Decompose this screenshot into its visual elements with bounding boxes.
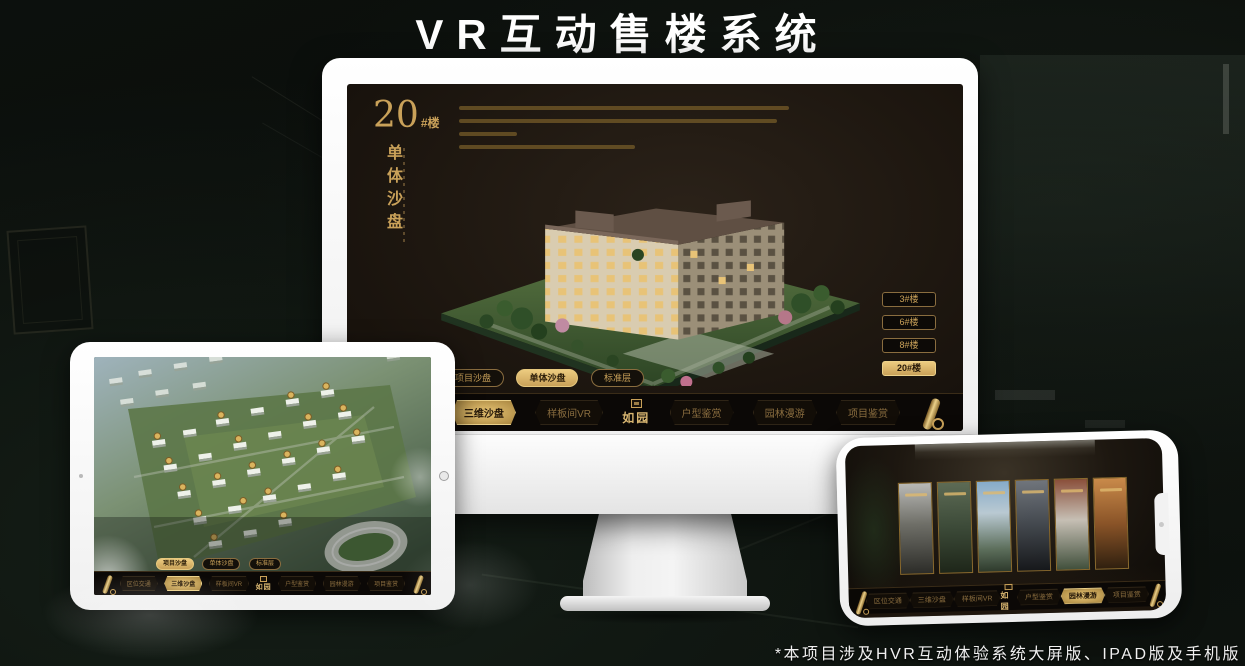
nav-item-model-room-vr[interactable]: 样板间VR — [535, 400, 603, 425]
tablet-device: 项目沙盘 单体沙盘 标准层 区位交通 三维沙盘 样板间VR 如园 户型鉴赏 园林… — [70, 342, 455, 610]
nav-item-model-room-vr[interactable]: 样板间VR — [954, 590, 1001, 607]
poster-footnote: *本项目涉及HVR互动体验系统大屏版、IPAD版及手机版 — [775, 640, 1241, 664]
background-highlight — [1085, 420, 1125, 428]
scene-gallery — [898, 477, 1129, 575]
background-picture-frame — [6, 225, 93, 334]
floor-button-20[interactable]: 20#楼 — [882, 361, 936, 376]
phone-device: 区位交通 三维沙盘 样板间VR 如园 户型鉴赏 园林漫游 项目鉴赏 — [836, 430, 1183, 627]
nav-item-project-gallery[interactable]: 项目鉴赏 — [1105, 586, 1149, 603]
nav-item-project-gallery[interactable]: 项目鉴赏 — [367, 576, 405, 591]
monitor-base — [560, 596, 770, 611]
background-map-line — [252, 76, 329, 125]
gallery-panel-sketch[interactable] — [898, 482, 934, 575]
brand-logo: 如园 — [256, 576, 272, 592]
logo-seal-icon — [260, 576, 267, 582]
nav-item-3d-sandbox[interactable]: 三维沙盘 — [164, 576, 202, 591]
subtab-standard-floor[interactable]: 标准层 — [249, 558, 281, 570]
building-number-suffix: #楼 — [421, 116, 440, 130]
logo-seal-icon — [631, 399, 642, 408]
nav-item-floorplan-gallery[interactable]: 户型鉴赏 — [278, 576, 316, 591]
nav-item-3d-sandbox[interactable]: 三维沙盘 — [910, 591, 954, 608]
background-street-photo — [980, 55, 1245, 455]
logo-seal-icon — [1004, 583, 1012, 589]
building-3d-render[interactable] — [413, 154, 883, 386]
brand-logo: 如园 — [1000, 583, 1017, 611]
nav-item-location-traffic[interactable]: 区位交通 — [120, 576, 158, 591]
tablet-main-navbar: 区位交通 三维沙盘 样板间VR 如园 户型鉴赏 园林漫游 项目鉴赏 — [94, 571, 431, 595]
subtab-single-sandbox[interactable]: 单体沙盘 — [516, 369, 578, 387]
nav-item-3d-sandbox[interactable]: 三维沙盘 — [452, 400, 516, 425]
floor-button-6[interactable]: 6#楼 — [882, 315, 936, 330]
description-line — [459, 132, 517, 136]
background-highlight — [995, 390, 1055, 400]
gallery-panel-courtyard[interactable] — [937, 481, 973, 574]
floor-button-3[interactable]: 3#楼 — [882, 292, 936, 307]
floor-selector: 3#楼 6#楼 8#楼 20#楼 — [882, 292, 936, 376]
nav-item-garden-tour[interactable]: 园林漫游 — [323, 576, 361, 591]
scroll-menu-icon[interactable] — [101, 575, 113, 593]
description-line — [459, 119, 777, 123]
gallery-panel-autumn[interactable] — [1054, 478, 1090, 571]
logo-text: 如园 — [256, 582, 272, 592]
building-number: 20 — [373, 95, 419, 136]
scroll-menu-icon[interactable] — [855, 590, 867, 612]
subtab-single-sandbox[interactable]: 单体沙盘 — [202, 558, 240, 570]
tablet-sandbox-subtabs: 项目沙盘 单体沙盘 标准层 — [156, 552, 285, 570]
gallery-panel-day-building[interactable] — [976, 480, 1012, 573]
brand-logo: 如园 — [622, 399, 650, 426]
scroll-menu-icon[interactable] — [919, 398, 941, 428]
section-title-vertical: 单体沙盘 — [380, 144, 404, 236]
interior-ceiling-beam — [915, 440, 1095, 461]
nav-item-floorplan-gallery[interactable]: 户型鉴赏 — [1017, 588, 1061, 605]
background-highlight — [1223, 64, 1229, 134]
tablet-camera — [79, 474, 83, 478]
nav-item-project-gallery[interactable]: 项目鉴赏 — [836, 400, 900, 425]
floor-button-8[interactable]: 8#楼 — [882, 338, 936, 353]
nav-item-garden-tour[interactable]: 园林漫游 — [1061, 587, 1105, 604]
poster: VR互动售楼系统 20#楼 单体沙盘 — [0, 0, 1245, 666]
sandbox-subtabs: 项目沙盘 单体沙盘 标准层 — [442, 368, 652, 387]
description-line — [459, 145, 635, 149]
scroll-menu-icon[interactable] — [1149, 583, 1161, 605]
building-description — [459, 106, 799, 158]
phone-screen: 区位交通 三维沙盘 样板间VR 如园 户型鉴赏 园林漫游 项目鉴赏 — [845, 438, 1166, 618]
subtab-project-sandbox[interactable]: 项目沙盘 — [156, 558, 194, 570]
building-heading: 20#楼 — [373, 98, 440, 134]
subtab-standard-floor[interactable]: 标准层 — [591, 369, 644, 387]
tablet-home-button[interactable] — [439, 471, 449, 481]
nav-item-model-room-vr[interactable]: 样板间VR — [209, 576, 249, 591]
monitor-stand — [583, 512, 747, 598]
nav-item-garden-tour[interactable]: 园林漫游 — [753, 400, 817, 425]
description-line — [459, 106, 789, 110]
scroll-menu-icon[interactable] — [412, 575, 424, 593]
phone-notch — [1154, 493, 1170, 555]
logo-text: 如园 — [622, 409, 650, 426]
gallery-panel-interior[interactable] — [1093, 477, 1129, 570]
nav-item-floorplan-gallery[interactable]: 户型鉴赏 — [670, 400, 734, 425]
logo-text: 如园 — [1000, 589, 1017, 611]
gallery-panel-dusk-building[interactable] — [1015, 479, 1051, 572]
tablet-screen: 项目沙盘 单体沙盘 标准层 区位交通 三维沙盘 样板间VR 如园 户型鉴赏 园林… — [94, 357, 431, 595]
poster-title: VR互动售楼系统 — [0, 1, 1245, 62]
decorative-english-caption — [403, 148, 405, 244]
nav-item-location-traffic[interactable]: 区位交通 — [866, 592, 910, 609]
